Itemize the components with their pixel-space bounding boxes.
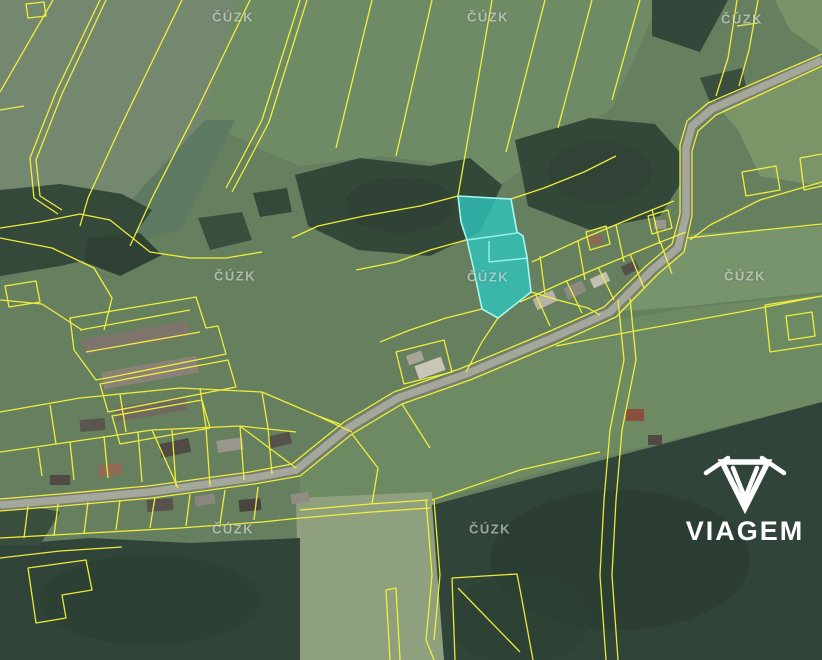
viagem-shield-icon — [706, 458, 784, 508]
cuzk-watermark: ČÚZK — [469, 522, 511, 537]
cuzk-watermark: ČÚZK — [724, 269, 766, 284]
cadastral-map[interactable]: ČÚZK ČÚZK ČÚZK ČÚZK ČÚZK ČÚZK ČÚZK ČÚZK … — [0, 0, 822, 660]
cuzk-watermark: ČÚZK — [721, 12, 763, 27]
cuzk-watermark: ČÚZK — [214, 269, 256, 284]
viagem-logo: VIAGEM — [668, 448, 822, 552]
cuzk-watermark: ČÚZK — [467, 270, 509, 285]
aerial-basemap — [0, 0, 822, 660]
viagem-logo-text: VIAGEM — [686, 516, 805, 546]
cuzk-watermark: ČÚZK — [212, 522, 254, 537]
cuzk-watermark: ČÚZK — [212, 10, 254, 25]
cuzk-watermark: ČÚZK — [467, 10, 509, 25]
